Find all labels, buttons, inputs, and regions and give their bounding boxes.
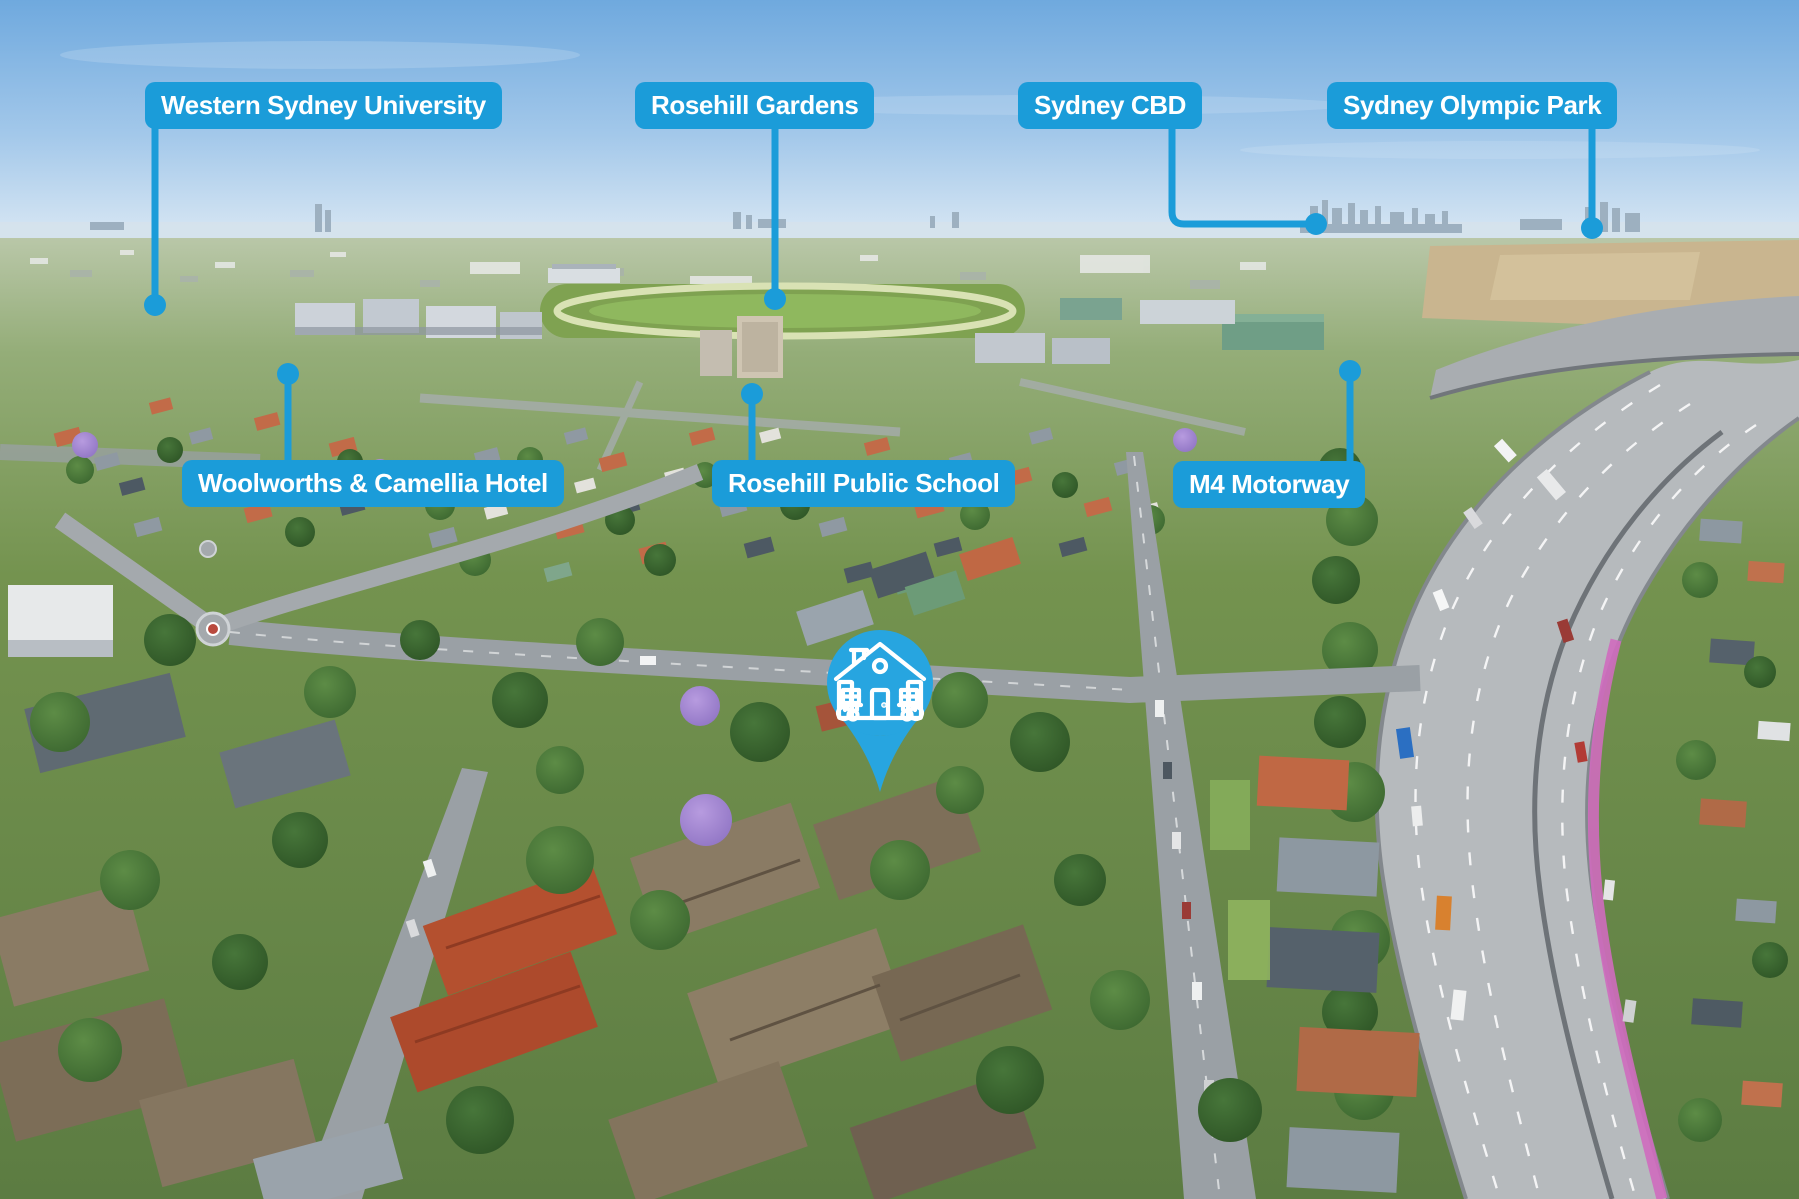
label-woolworths-camellia-hotel: Woolworths & Camellia Hotel — [182, 460, 564, 507]
label-western-sydney-university: Western Sydney University — [145, 82, 502, 129]
label-sydney-olympic-park: Sydney Olympic Park — [1327, 82, 1617, 129]
jacaranda-tree — [1173, 428, 1197, 452]
jacaranda-tree — [680, 794, 732, 846]
aerial-photo: Western Sydney University Rosehill Garde… — [0, 0, 1799, 1199]
label-rosehill-public-school: Rosehill Public School — [712, 460, 1015, 507]
label-m4-motorway: M4 Motorway — [1173, 461, 1365, 508]
photo-background — [0, 0, 1799, 1199]
jacaranda-tree — [680, 686, 720, 726]
jacaranda-tree — [72, 432, 98, 458]
label-rosehill-gardens: Rosehill Gardens — [635, 82, 874, 129]
label-sydney-cbd: Sydney CBD — [1018, 82, 1202, 129]
